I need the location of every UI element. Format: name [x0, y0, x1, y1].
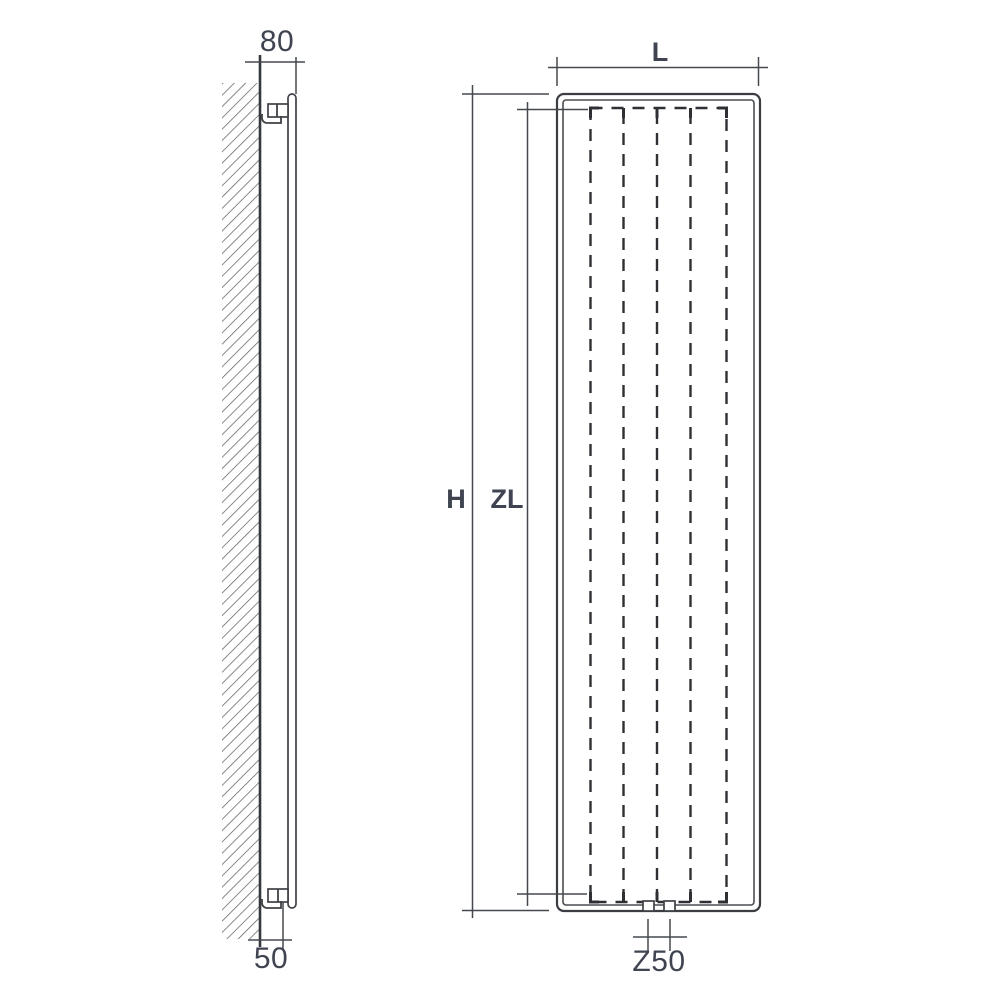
drawing-svg: 80 50	[0, 0, 1000, 1000]
depth-dimension-label: 80	[260, 25, 294, 58]
mounting-bracket-top	[262, 104, 288, 123]
connection-spacing-dimension: Z50	[632, 919, 687, 978]
mounting-bracket-bottom	[262, 889, 288, 950]
width-dimension-label: L	[652, 37, 669, 67]
radiator-technical-drawing: 80 50	[0, 0, 1000, 1000]
front-view: L H ZL Z50	[446, 37, 768, 978]
radiator-panel-side-profile	[288, 94, 296, 908]
wall-hatching	[222, 83, 260, 939]
height-dimension-label: H	[446, 484, 466, 514]
width-dimension: L	[548, 37, 768, 86]
connection-port-left	[643, 901, 654, 911]
element-length-dimension-label: ZL	[491, 484, 524, 514]
connection-port-right	[664, 901, 675, 911]
clearance-dimension-label: 50	[254, 942, 288, 975]
radiator-body-outline	[557, 94, 760, 911]
bracket-top-body	[268, 104, 288, 117]
connection-spacing-label: Z50	[632, 945, 685, 978]
wall-clearance-dimension: 50	[248, 940, 292, 975]
side-view: 80 50	[222, 25, 305, 975]
